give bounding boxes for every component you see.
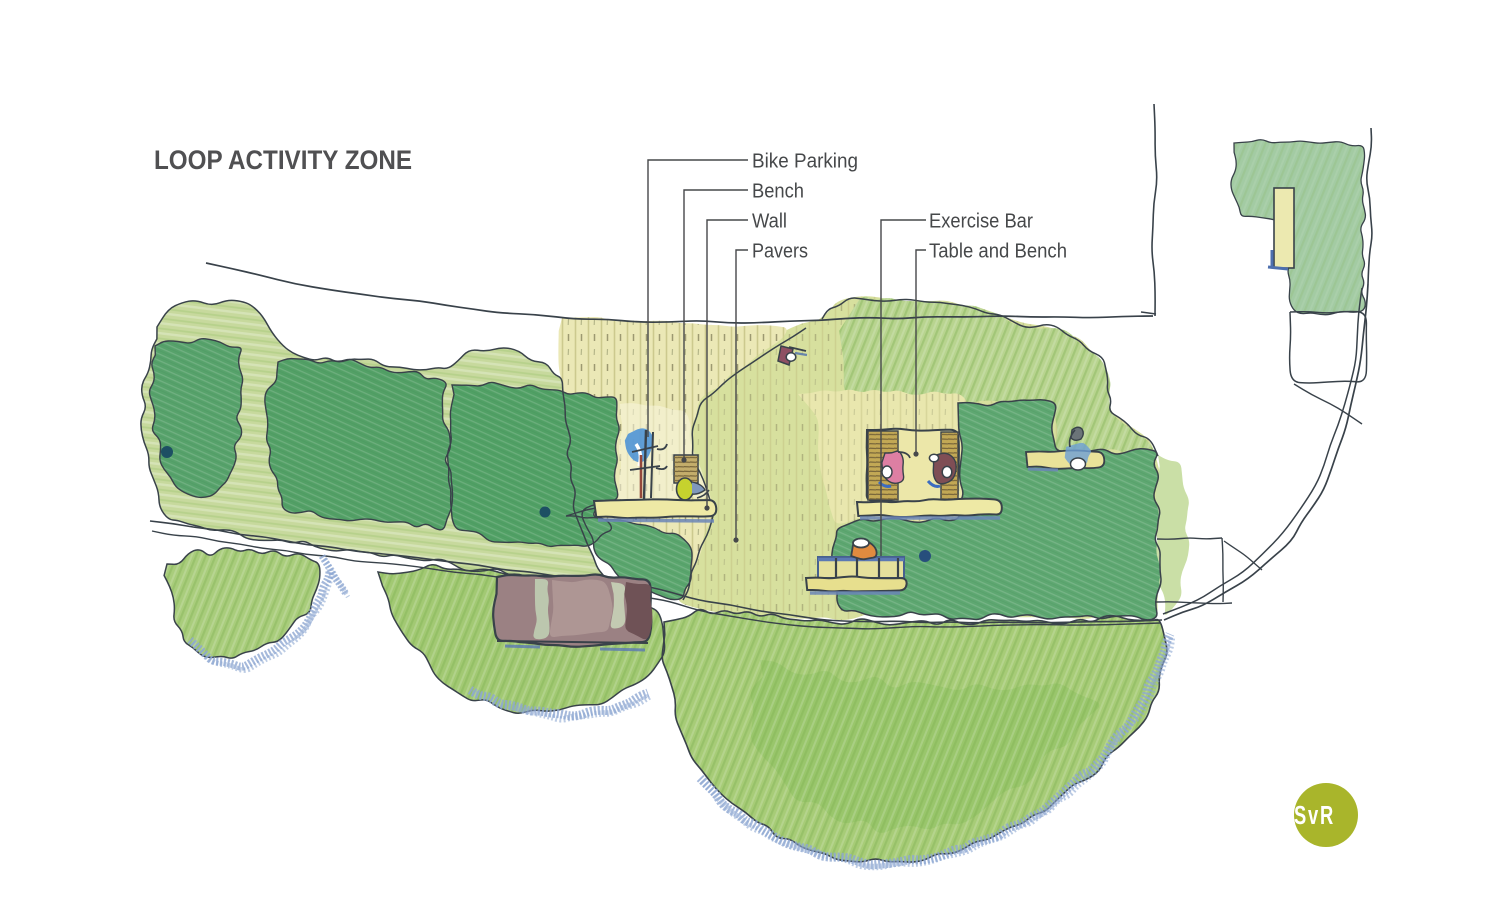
svg-text:Bench: Bench — [752, 180, 804, 203]
svg-text:Pavers: Pavers — [752, 240, 808, 263]
svg-text:Exercise Bar: Exercise Bar — [929, 210, 1033, 233]
svg-text:Table and Bench: Table and Bench — [929, 240, 1067, 263]
svg-text:Bike Parking: Bike Parking — [752, 150, 858, 173]
svg-text:SvR: SvR — [1294, 801, 1335, 830]
svg-text:Wall: Wall — [752, 210, 787, 233]
svg-text:LOOP ACTIVITY ZONE: LOOP ACTIVITY ZONE — [154, 145, 412, 175]
